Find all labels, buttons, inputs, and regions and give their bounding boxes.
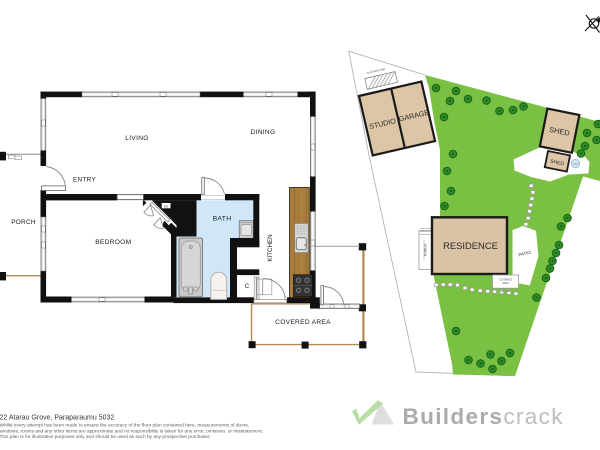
svg-text:SPA: SPA [573,163,578,166]
svg-text:COVERED AREA: COVERED AREA [275,319,331,326]
svg-text:BATH: BATH [213,216,232,223]
svg-text:LIVING: LIVING [125,135,148,142]
svg-text:Builderscrack: Builderscrack [403,404,564,429]
svg-text:CLOTHES LINE: CLOTHES LINE [366,67,385,75]
svg-text:AREA: AREA [502,281,509,285]
svg-text:Whilst every attempt has been: Whilst every attempt has been made to en… [0,423,249,429]
svg-text:BEDROOM: BEDROOM [95,239,131,246]
svg-text:KITCHEN: KITCHEN [267,234,274,261]
svg-text:COVERED: COVERED [499,278,512,282]
svg-text:PORCH: PORCH [11,219,36,226]
svg-text:windows, rooms and any other i: windows, rooms and any other items are a… [0,428,263,434]
svg-text:DINING: DINING [251,129,276,136]
svg-text:RESIDENCE: RESIDENCE [443,240,498,251]
svg-text:C: C [245,284,250,290]
svg-text:ENTRY: ENTRY [73,177,96,184]
svg-text:BR: BR [164,204,169,208]
svg-text:This plan is for illustrative: This plan is for illustrative purposes o… [0,434,211,440]
svg-text:22 Atarau Grove, Paraparaumu 5: 22 Atarau Grove, Paraparaumu 5032 [0,415,114,422]
